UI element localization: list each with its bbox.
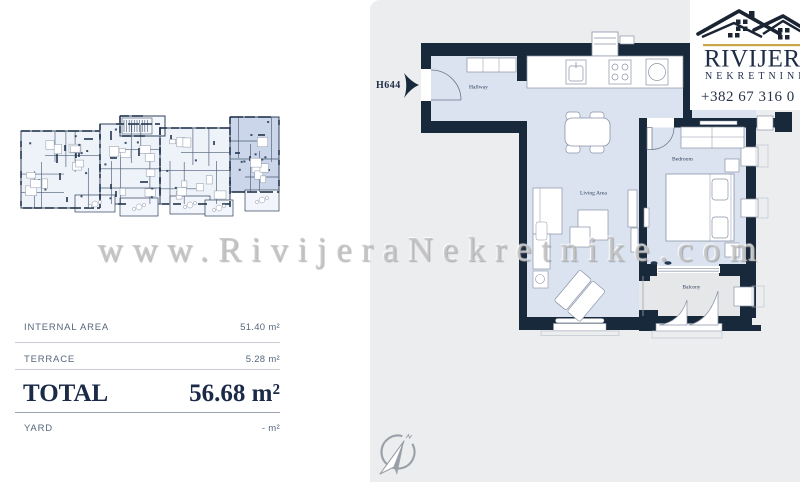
svg-text:RIVIJERA: RIVIJERA: [704, 46, 800, 73]
svg-text:NEKRETNINE: NEKRETNINE: [705, 71, 800, 82]
svg-text:+382 67 316 0: +382 67 316 0: [701, 89, 795, 105]
svg-text:Bedroom: Bedroom: [672, 157, 693, 163]
svg-text:Living Area: Living Area: [580, 191, 607, 197]
svg-text:Balcony: Balcony: [683, 285, 701, 291]
svg-text:Hallway: Hallway: [469, 85, 488, 91]
